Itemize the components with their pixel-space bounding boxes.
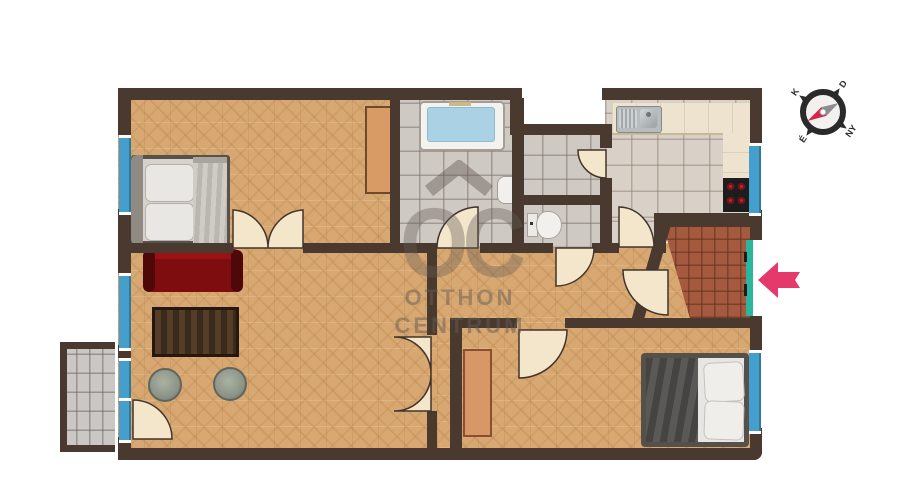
door-bathroom (437, 207, 478, 248)
compass-label-south: D (837, 78, 849, 89)
compass-label-east: K (789, 86, 801, 97)
compass-label-west: NY (843, 123, 858, 139)
double-door-bedroom-1 (233, 210, 303, 248)
door-kitchen (619, 207, 654, 247)
double-door-living-room (394, 337, 431, 411)
door-entrance-hall (623, 270, 668, 315)
floor-plan: OC OTTHON CENTRUM É K D NY (0, 0, 909, 500)
compass: É K D NY (781, 71, 865, 155)
door-bedroom-2 (519, 330, 567, 378)
door-balcony-swing (133, 400, 172, 439)
door-pantry (578, 150, 606, 178)
entrance-arrow-icon (754, 260, 802, 300)
door-wc (556, 248, 594, 286)
door-swings-layer (0, 0, 909, 500)
compass-pivot (820, 109, 826, 115)
